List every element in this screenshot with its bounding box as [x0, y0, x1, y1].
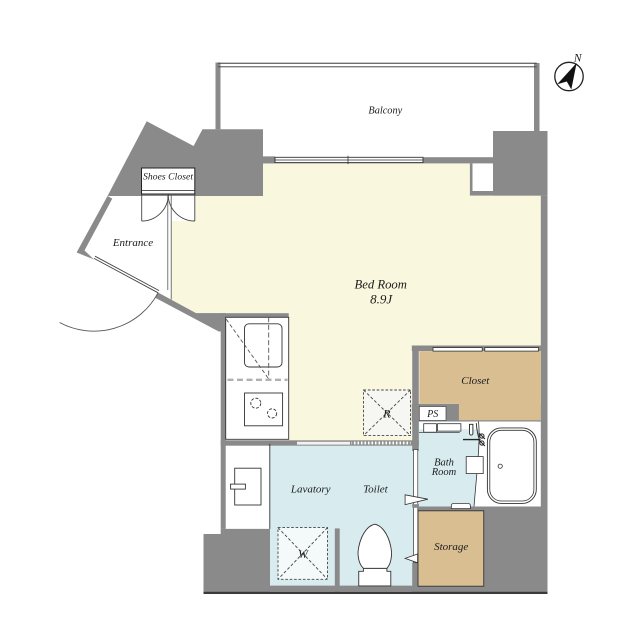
svg-text:Room: Room — [431, 467, 457, 478]
svg-text:Storage: Storage — [434, 541, 468, 553]
svg-text:Shoes Closet: Shoes Closet — [143, 172, 193, 183]
svg-text:Entrance: Entrance — [112, 237, 153, 249]
svg-text:Toilet: Toilet — [363, 484, 389, 496]
svg-text:Balcony: Balcony — [368, 106, 402, 117]
svg-text:Bed Room: Bed Room — [354, 278, 407, 292]
svg-text:8.9J: 8.9J — [370, 292, 393, 307]
svg-text:Lavatory: Lavatory — [290, 484, 331, 496]
svg-text:PS: PS — [426, 409, 438, 420]
svg-text:Closet: Closet — [461, 375, 490, 387]
svg-text:R: R — [382, 406, 391, 420]
svg-text:N: N — [573, 53, 583, 65]
svg-text:W: W — [298, 549, 309, 561]
